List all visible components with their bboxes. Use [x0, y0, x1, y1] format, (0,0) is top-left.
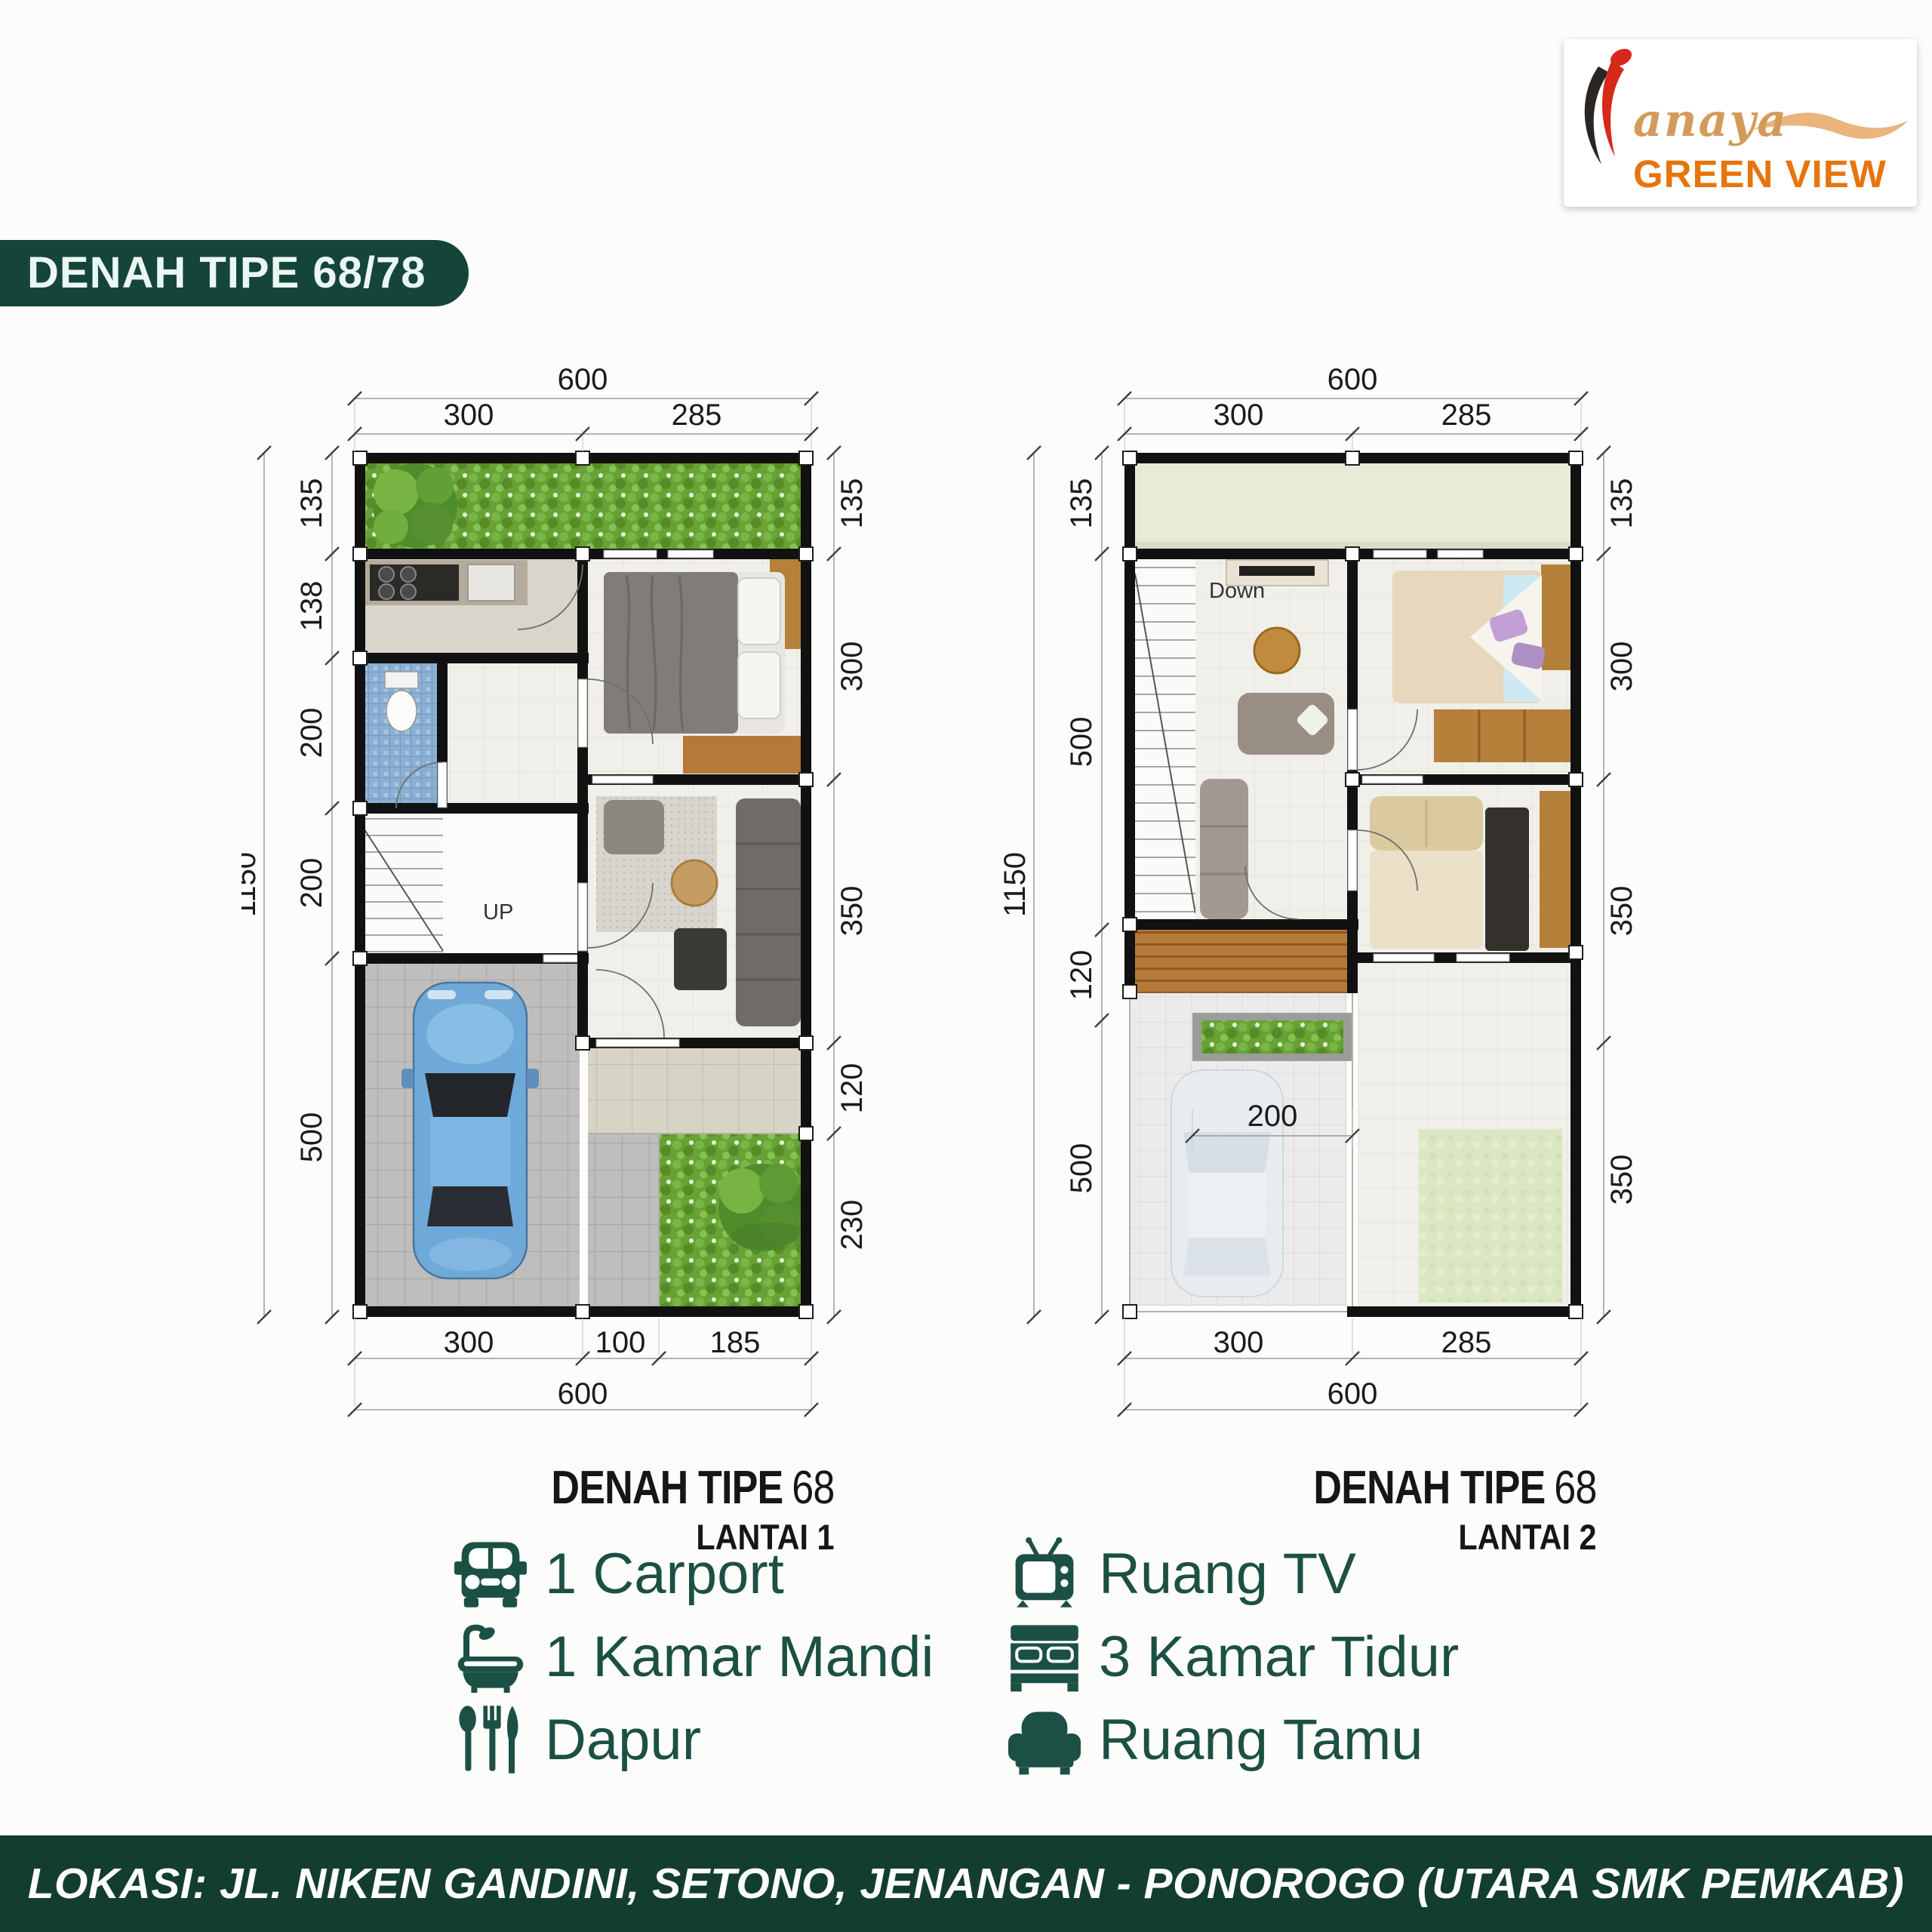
svg-text:230: 230 [835, 1200, 869, 1251]
legend-item-carport: 1 Carport [448, 1532, 934, 1615]
svg-text:200: 200 [295, 858, 328, 909]
svg-text:300: 300 [835, 641, 869, 692]
svg-text:100: 100 [595, 1326, 646, 1359]
svg-text:120: 120 [835, 1063, 869, 1114]
legend-label: Ruang Tamu [1099, 1707, 1423, 1773]
location-text: LOKASI: JL. NIKEN GANDINI, SETONO, JENAN… [28, 1859, 1905, 1909]
legend-label: 1 Kamar Mandi [545, 1624, 934, 1690]
legend-item-ruang-tamu: Ruang Tamu [1002, 1698, 1459, 1781]
location-bar: LOKASI: JL. NIKEN GANDINI, SETONO, JENAN… [0, 1835, 1932, 1932]
svg-text:500: 500 [1065, 717, 1098, 768]
car-top-view [401, 983, 539, 1278]
floorplan-lantai-1: UP [241, 363, 869, 1417]
brand-logo: anaya GREEN VIEW [1564, 39, 1917, 207]
svg-text:600: 600 [1327, 363, 1378, 396]
caption-number: 68 [792, 1462, 834, 1514]
legend-right-column: Ruang TV 3 Kamar Tidur [1002, 1532, 1459, 1781]
svg-text:135: 135 [295, 478, 328, 529]
caption-title: DENAH TIPE [551, 1462, 783, 1514]
legend-item-kamar-mandi: 1 Kamar Mandi [448, 1615, 934, 1698]
logo-caps: GREEN VIEW [1633, 152, 1887, 195]
cutlery-icon [448, 1702, 533, 1777]
legend-item-dapur: Dapur [448, 1698, 934, 1781]
svg-text:185: 185 [710, 1326, 761, 1359]
svg-text:350: 350 [1605, 1155, 1638, 1205]
legend-left-column: 1 Carport 1 Kamar Mandi [448, 1532, 934, 1781]
sofa-icon [1002, 1702, 1087, 1777]
svg-text:300: 300 [1214, 398, 1264, 432]
title-badge: DENAH TIPE 68/78 [0, 240, 469, 306]
floorplan-lantai-2: Down [998, 363, 1638, 1417]
caption-number: 68 [1554, 1462, 1596, 1514]
svg-text:285: 285 [672, 398, 722, 432]
svg-text:138: 138 [295, 581, 328, 632]
svg-text:350: 350 [835, 886, 869, 937]
sanaya-flame-icon: anaya GREEN VIEW [1564, 39, 1917, 207]
legend-label: 3 Kamar Tidur [1099, 1624, 1459, 1690]
legend-label: Dapur [545, 1707, 701, 1773]
svg-text:600: 600 [558, 1377, 608, 1411]
svg-text:135: 135 [1065, 478, 1098, 529]
legend-item-ruang-tv: Ruang TV [1002, 1532, 1459, 1615]
svg-text:300: 300 [444, 1326, 494, 1359]
svg-text:1150: 1150 [998, 852, 1032, 917]
svg-text:135: 135 [835, 478, 869, 529]
svg-text:600: 600 [558, 363, 608, 396]
tv-icon [1002, 1536, 1087, 1611]
svg-text:300: 300 [1214, 1326, 1264, 1359]
car-icon [448, 1536, 533, 1611]
legend-label: Ruang TV [1099, 1541, 1356, 1607]
svg-text:285: 285 [1441, 1326, 1492, 1359]
logo-script: anaya [1633, 94, 1788, 147]
bed-icon [1002, 1619, 1087, 1694]
caption-title: DENAH TIPE [1313, 1462, 1545, 1514]
legend-label: 1 Carport [545, 1541, 784, 1607]
svg-text:500: 500 [295, 1112, 328, 1163]
svg-text:200: 200 [295, 708, 328, 758]
page: anaya GREEN VIEW DENAH TIPE 68/78 [0, 0, 1932, 1932]
svg-text:600: 600 [1327, 1377, 1378, 1411]
svg-text:200: 200 [1247, 1100, 1298, 1133]
svg-text:135: 135 [1605, 478, 1638, 529]
svg-text:285: 285 [1441, 398, 1492, 432]
stairs-up-label: UP [483, 900, 513, 924]
floorplans: UP [241, 355, 1660, 1457]
bathtub-icon [448, 1619, 533, 1694]
svg-text:300: 300 [444, 398, 494, 432]
svg-text:300: 300 [1605, 641, 1638, 692]
svg-text:120: 120 [1065, 950, 1098, 1001]
svg-text:350: 350 [1605, 886, 1638, 937]
legend-item-kamar-tidur: 3 Kamar Tidur [1002, 1615, 1459, 1698]
svg-text:500: 500 [1065, 1143, 1098, 1194]
svg-text:1150: 1150 [241, 852, 262, 917]
